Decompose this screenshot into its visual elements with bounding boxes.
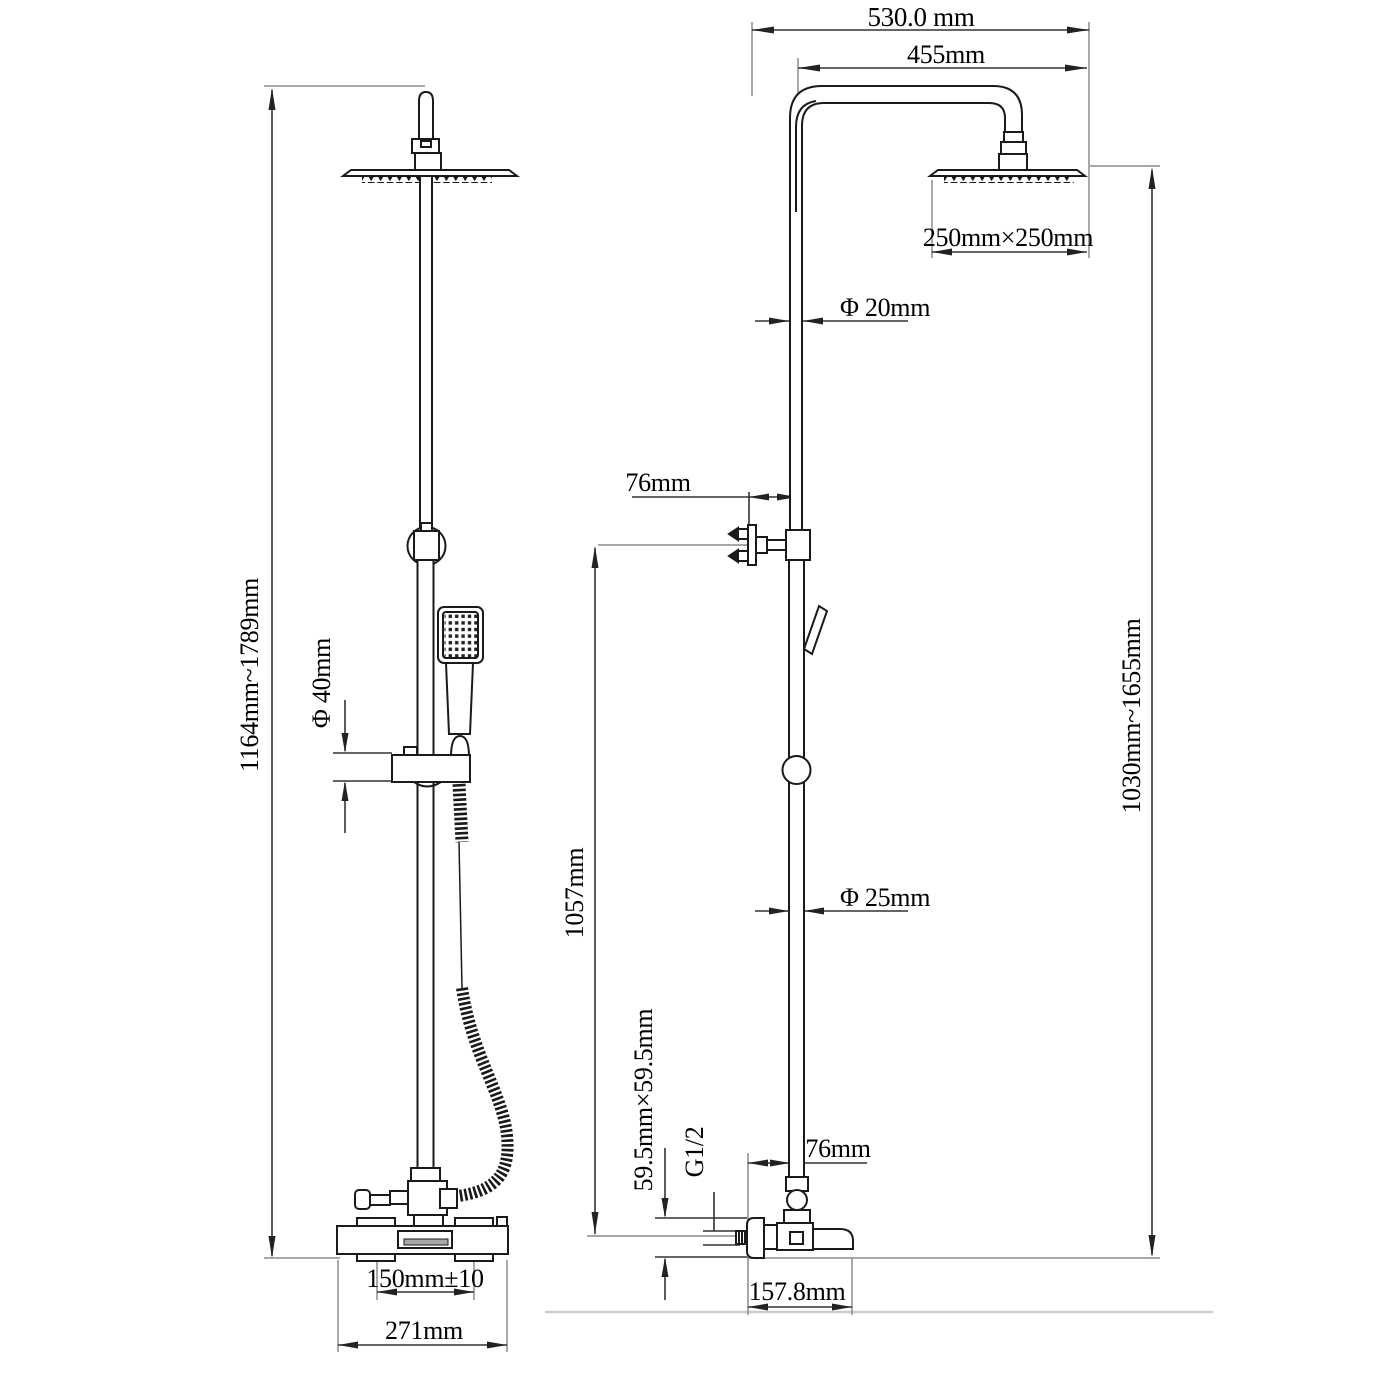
hand-shower-outlet (451, 736, 469, 757)
dim-arm-reach: 455mm (907, 40, 985, 69)
dimension-labels: 530.0 mm 455mm 250mm×250mm Φ 20mm 76mm Φ… (235, 2, 1146, 1345)
hand-shower-handle-side (804, 606, 827, 654)
diverter-ball-side (787, 1190, 807, 1210)
lower-pipe-front (418, 560, 434, 1168)
rain-shower-head-side (930, 170, 1085, 176)
spout-side (813, 1229, 853, 1249)
dim-upper-pipe-diameter: Φ 20mm (840, 293, 930, 322)
dim-upper-wall-offset: 76mm (625, 468, 690, 497)
dim-head-size: 250mm×250mm (923, 223, 1093, 252)
dim-top-width: 530.0 mm (867, 2, 974, 32)
dim-lower-pipe-diameter: Φ 25mm (840, 883, 930, 912)
spray-nozzles-side (944, 176, 1074, 183)
slider-block-side (786, 530, 810, 560)
head-mount (415, 153, 441, 171)
shower-hose-top (459, 784, 462, 842)
dim-slider-diameter: Φ 40mm (307, 638, 336, 728)
dim-base-width: 271mm (385, 1316, 463, 1345)
dim-lower-wall-offset: 76mm (805, 1134, 870, 1163)
hand-shower-handle (446, 663, 473, 734)
top-cap (419, 92, 433, 139)
wall-screw-top (729, 528, 738, 540)
wall-escutcheon (747, 1218, 764, 1258)
wall-plate (748, 525, 756, 565)
diverter-knob-front (355, 1190, 370, 1209)
front-view (337, 92, 517, 1261)
dim-thread-spec: G1/2 (680, 1127, 709, 1178)
shower-hose-wire (459, 842, 462, 988)
hose-connector-front (440, 1189, 457, 1208)
dim-escutcheon-size: 59.5mm×59.5mm (629, 1009, 658, 1192)
bracket-arm (767, 540, 787, 550)
dim-height-range-front: 1164mm~1789mm (235, 578, 264, 772)
pipe-joint-side (783, 756, 811, 784)
dim-inlet-centers: 150mm±10 (366, 1264, 484, 1293)
arm-nut (1001, 142, 1026, 154)
shower-hose-coil (458, 988, 508, 1196)
lower-pipe-side (789, 560, 804, 1178)
dim-slide-bar-height: 1057mm (560, 848, 589, 939)
dimension-lines (264, 22, 1213, 1352)
upper-pipe-front (420, 176, 432, 531)
drawing-svg: 530.0 mm 455mm 250mm×250mm Φ 20mm 76mm Φ… (0, 0, 1400, 1400)
dim-spout-reach: 157.8mm (749, 1277, 846, 1306)
hand-shower-face (445, 614, 478, 658)
side-view (729, 86, 1085, 1258)
slider-bracket-front (392, 755, 470, 782)
wall-screw-bottom (729, 550, 738, 562)
technical-drawing: 530.0 mm 455mm 250mm×250mm Φ 20mm 76mm Φ… (0, 0, 1400, 1400)
dim-riser-height-range: 1030mm~1655mm (1117, 618, 1146, 813)
